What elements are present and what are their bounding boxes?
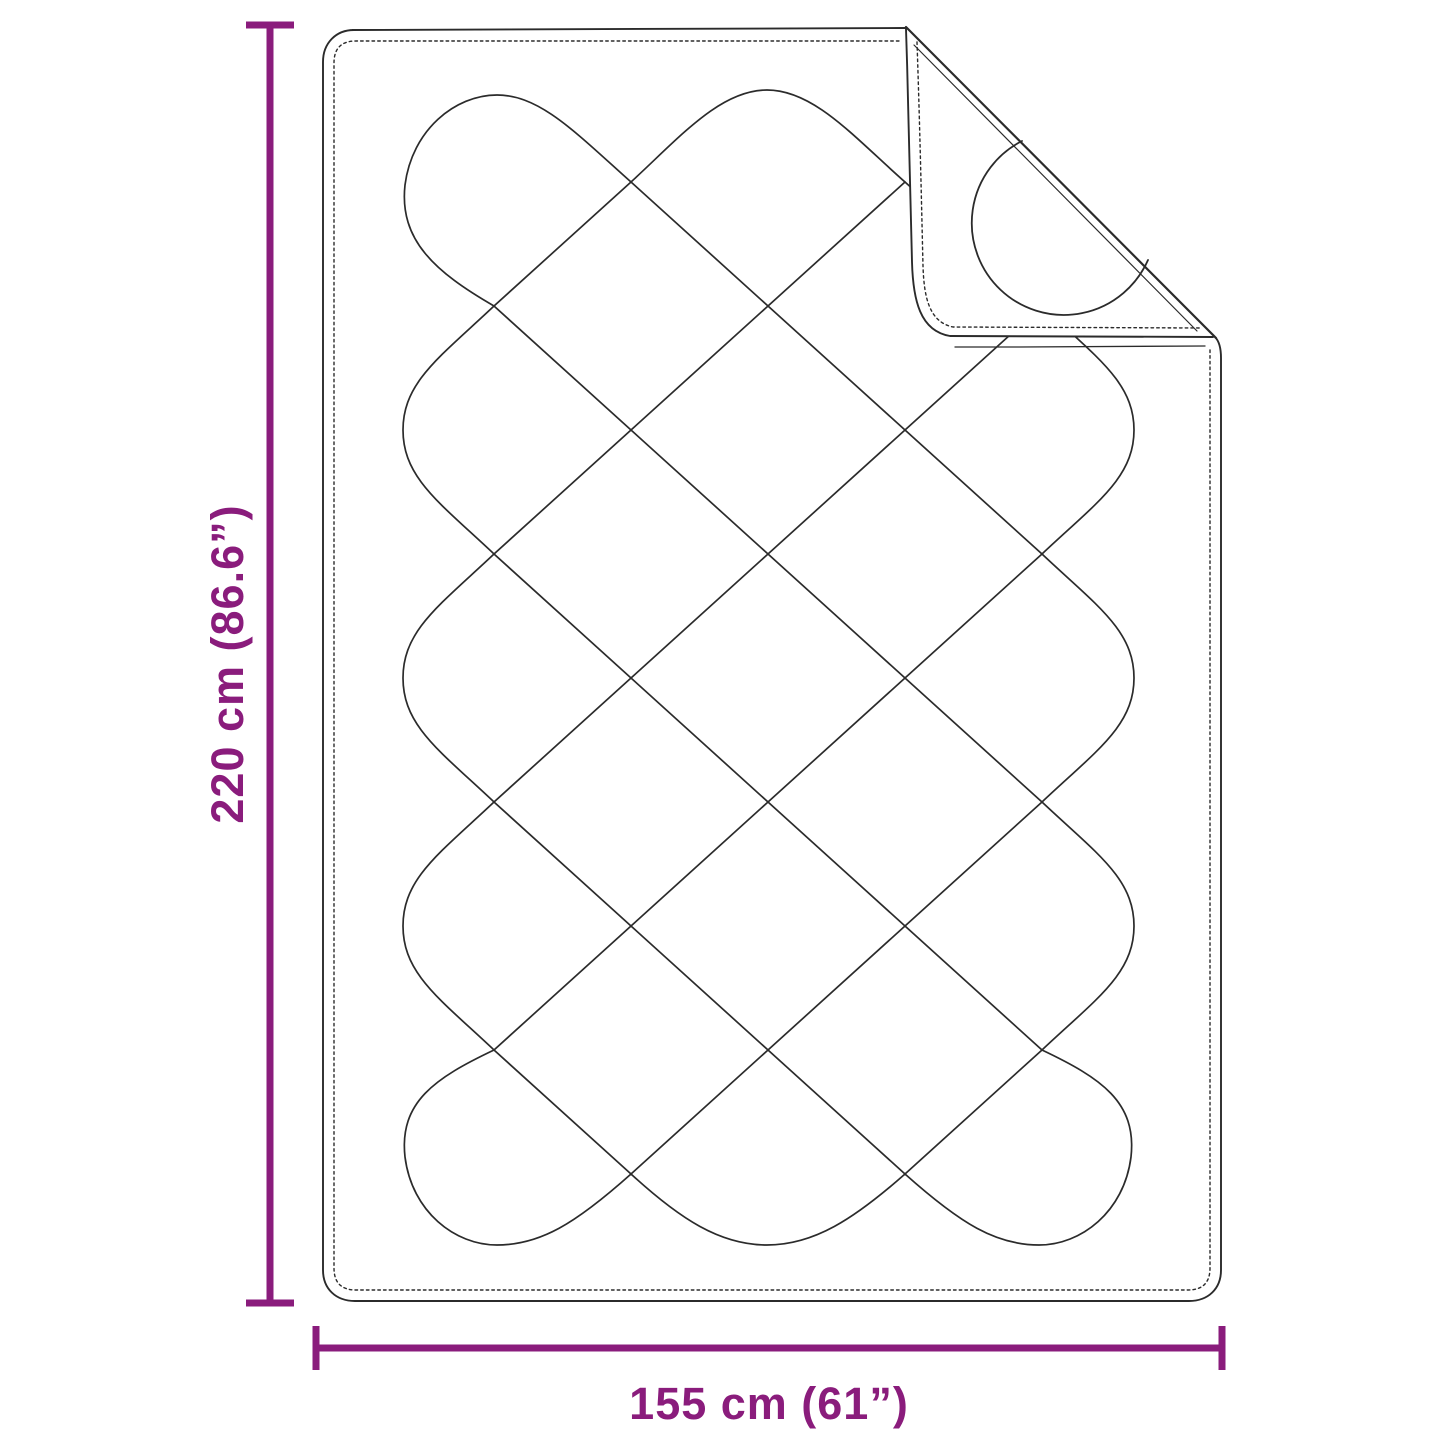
- blanket-dimension-diagram: 220 cm (86.6”) 155 cm (61”): [0, 0, 1445, 1445]
- height-dimension: [246, 25, 294, 1303]
- width-dimension-label: 155 cm (61”): [629, 1378, 909, 1429]
- diagram-canvas: 220 cm (86.6”) 155 cm (61”): [0, 0, 1445, 1445]
- folded-corner: [906, 27, 1216, 347]
- height-dimension-label: 220 cm (86.6”): [202, 504, 253, 823]
- blanket: [323, 27, 1221, 1301]
- width-dimension: [316, 1326, 1222, 1370]
